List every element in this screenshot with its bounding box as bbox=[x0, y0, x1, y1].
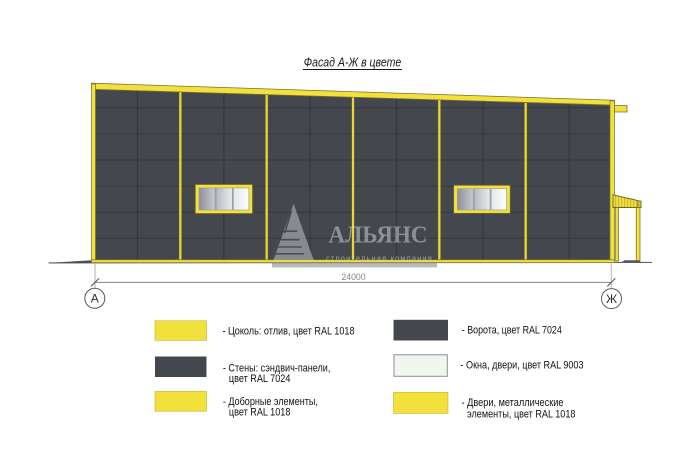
svg-text:- Ворота, цвет RAL 7024: - Ворота, цвет RAL 7024 bbox=[462, 325, 562, 337]
svg-text:элементы, цвет RAL 1018: элементы, цвет RAL 1018 bbox=[467, 409, 576, 421]
svg-text:- Окна, двери, цвет RAL 9003: - Окна, двери, цвет RAL 9003 bbox=[461, 359, 584, 371]
svg-text:Фасад А-Ж в цвете: Фасад А-Ж в цвете bbox=[304, 55, 402, 70]
svg-text:строительная компания: строительная компания bbox=[326, 254, 433, 263]
svg-text:24000: 24000 bbox=[342, 272, 366, 282]
svg-text:АЛЬЯНС: АЛЬЯНС bbox=[329, 223, 428, 249]
svg-text:цвет RAL 1018: цвет RAL 1018 bbox=[229, 407, 291, 419]
svg-text:- Цоколь: отлив, цвет RAL 1018: - Цоколь: отлив, цвет RAL 1018 bbox=[223, 326, 355, 338]
svg-text:- Двери, металлические: - Двери, металлические bbox=[462, 397, 564, 409]
svg-text:А: А bbox=[91, 292, 99, 306]
svg-text:Ж: Ж bbox=[606, 292, 617, 306]
svg-text:цвет RAL 7024: цвет RAL 7024 bbox=[229, 373, 291, 385]
